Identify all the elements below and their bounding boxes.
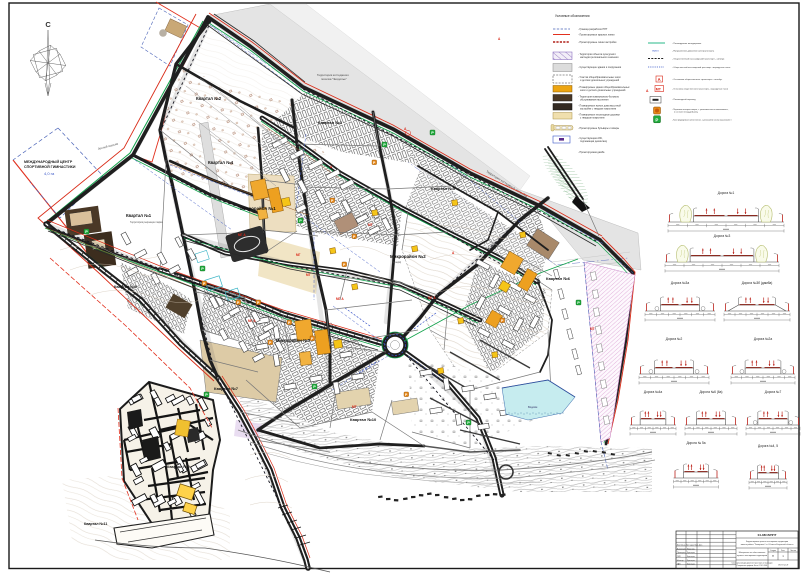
svg-text:Проверил: Проверил [677,552,685,554]
svg-text:в составе площадей улиц: в составе площадей улиц [674,111,699,114]
svg-text:Стадия: Стадия [770,550,776,552]
svg-text:поселка "Экодолье": поселка "Экодолье" [321,77,347,81]
svg-text:Дорога №2а: Дорога №2а [754,337,772,341]
svg-text:- Общественный пассажирский тр: - Общественный пассажирский транспорт - … [672,58,725,61]
svg-text:МТ: МТ [656,87,662,91]
svg-text:Микрорайон №2: Микрорайон №2 [390,254,426,259]
svg-text:Дорога №3а: Дорога №3а [671,281,689,285]
svg-text:Микрорайон №3: Микрорайон №3 [276,338,311,343]
svg-text:Материалы по обоснованию: Материалы по обоснованию [739,552,766,554]
svg-text:- Проектируемые бульвары и скв: - Проектируемые бульвары и скверы [578,127,619,130]
svg-text:Кузнецов: Кузнецов [687,560,695,562]
svg-text:Дорога №7: Дорога №7 [765,390,782,394]
svg-text:Дорога №4, 5: Дорога №4, 5 [758,444,778,448]
svg-text:(резерв): (резерв) [392,261,401,264]
svg-text:4,0 га: 4,0 га [44,171,55,176]
svg-text:Дорога №3: Дорога №3 [714,234,731,238]
svg-text:- Проектируемые линии застройк: - Проектируемые линии застройки [578,41,617,44]
svg-text:Дорога №3б (дамба): Дорога №3б (дамба) [742,281,773,285]
svg-text:Квартал №10: Квартал №10 [350,417,377,422]
svg-text:застройки с твердым покрытием: застройки с твердым покрытием [580,108,616,111]
svg-text:Водоём: Водоём [528,405,538,409]
svg-text:Кузнецов: Кузнецов [687,564,695,566]
svg-text:Квартал №2: Квартал №2 [196,96,222,101]
svg-text:Дорога № 5а: Дорога № 5а [686,441,705,445]
svg-text:Листов: Листов [790,550,796,552]
svg-text:Кузнецов: Кузнецов [687,556,695,558]
svg-text:Выполнил: Выполнил [677,549,686,551]
svg-text:- Планируемая велодорожка: - Планируемая велодорожка [672,43,702,45]
svg-text:Схема организации движения тра: Схема организации движения транспорта и … [732,563,773,565]
svg-text:- Конструируемые автостоянки,: - Конструируемые автостоянки, с указание… [672,120,732,122]
svg-text:Квартал №11: Квартал №11 [84,522,107,526]
svg-text:Квартал №4: Квартал №4 [208,160,234,165]
svg-text:Квартал №9: Квартал №9 [167,465,190,469]
svg-text:Дорога №6 (6а): Дорога №6 (6а) [699,390,722,394]
svg-text:Лист: Лист [781,550,785,552]
svg-text:трол.: трол. [652,50,659,53]
svg-text:МГ А: МГ А [238,233,246,237]
svg-text:Жданова: Жданова [687,549,695,551]
svg-text:МГ А: МГ А [428,296,436,300]
svg-text:П: П [772,555,774,558]
svg-text:Дорога №4а: Дорога №4а [644,390,662,394]
svg-text:Территория рекреации парка: Территория рекреации парка [130,221,163,224]
svg-text:обслуживания населения: обслуживания населения [580,99,609,102]
svg-text:МГ: МГ [296,253,301,257]
svg-text:МТ: МТ [306,273,311,277]
svg-text:04-08/15/ППТ: 04-08/15/ППТ [758,533,777,537]
svg-text:- Существующие здания и сооруж: - Существующие здания и сооружения [578,66,622,69]
svg-text:Условные обозначения: Условные обозначения [555,14,590,18]
svg-text:- Проектируемые красные линии: - Проектируемые красные линии [578,34,615,37]
svg-text:подлежащая демонтажу: подлежащая демонтажу [580,140,608,143]
svg-text:МТ: МТ [352,405,357,409]
svg-text:жилого района "Заовражье" в г.: жилого района "Заовражье" в г.Обнинск Ка… [741,543,794,546]
svg-text:проекта планировки территории: проекта планировки территории [737,555,767,557]
svg-text:с твердым покрытием: с твердым покрытием [580,117,605,120]
svg-text:Микрорайон №1: Микрорайон №1 [240,206,276,211]
svg-text:и детских дошкольных учреждени: и детских дошкольных учреждений [580,79,620,82]
svg-text:- Остановка общественного тран: - Остановка общественного транспорта - а… [672,79,723,81]
svg-text:- Остановка общественного тран: - Остановка общественного транспорта - м… [672,89,728,91]
svg-text:Корректировка проекта планиров: Корректировка проекта планировки террито… [746,541,788,543]
svg-text:МГ А: МГ А [336,297,344,301]
svg-text:МЕЖДУНАРОДНЫЙ ЦЕНТР: МЕЖДУНАРОДНЫЙ ЦЕНТР [24,160,73,164]
svg-text:Квартал №3: Квартал №3 [318,120,343,125]
svg-text:- Проектируемая дамба: - Проектируемая дамба [578,151,605,154]
svg-text:Квартал №5: Квартал №5 [431,186,456,191]
svg-text:Н.контр.: Н.контр. [677,560,684,562]
svg-text:МГ А: МГ А [248,319,256,323]
svg-text:МТ: МТ [590,327,595,331]
svg-text:школ и детских дошкольных учре: школ и детских дошкольных учреждений [580,89,626,92]
svg-text:- Общественный пассажирский тр: - Общественный пассажирский транспорт - … [672,66,730,69]
svg-text:ООО ЧСЭ: ООО ЧСЭ [778,565,789,567]
svg-text:Квартал №6: Квартал №6 [546,276,571,281]
svg-text:А: А [658,77,661,82]
svg-text:наследия регионального значени: наследия регионального значения [580,56,619,59]
svg-text:МТ: МТ [368,223,373,227]
svg-text:- Направление движения автотра: - Направление движения автотранспорта [672,51,715,53]
svg-text:Квартал №7: Квартал №7 [214,386,239,391]
svg-text:Квартал №1: Квартал №1 [126,213,152,218]
svg-text:Дорога №1: Дорога №1 [718,191,735,195]
svg-text:С: С [45,20,51,29]
svg-text:Дорога №2: Дорога №2 [666,337,683,341]
svg-text:СПОРТИВНОЙ ГИМНАСТИКИ: СПОРТИВНОЙ ГИМНАСТИКИ [24,165,76,169]
svg-text:Квартал №8: Квартал №8 [114,285,137,289]
svg-text:- Граница разработки ППТ: - Граница разработки ППТ [578,28,608,31]
svg-text:P: P [655,117,658,122]
svg-text:Кузнецов: Кузнецов [687,552,695,554]
svg-text:- Пешеходный переход: - Пешеходный переход [672,98,696,101]
